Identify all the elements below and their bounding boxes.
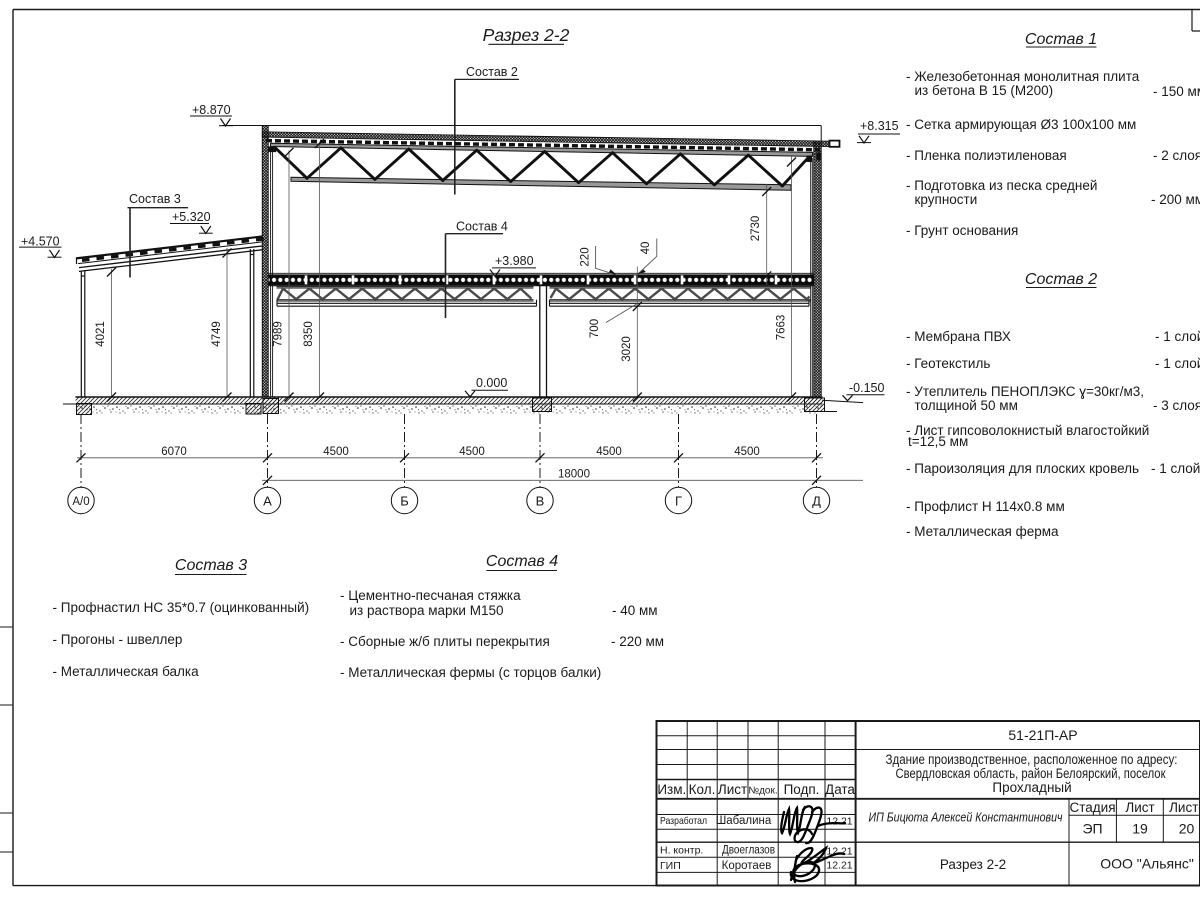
svg-text:А: А bbox=[263, 494, 272, 509]
svg-text:Коротаев: Коротаев bbox=[722, 860, 772, 872]
svg-text:Изм.: Изм. bbox=[657, 782, 686, 797]
svg-text:Состав 3: Состав 3 bbox=[175, 557, 247, 574]
svg-text:7989: 7989 bbox=[273, 321, 285, 347]
svg-text:Здание производственное, распо: Здание производственное, расположенное п… bbox=[886, 752, 1178, 767]
svg-text:- Пароизоляция для плоских кро: - Пароизоляция для плоских кровель bbox=[906, 461, 1139, 476]
svg-text:Разрез 2-2: Разрез 2-2 bbox=[940, 857, 1006, 872]
svg-text:Н. контр.: Н. контр. bbox=[660, 845, 703, 857]
svg-text:Двоеглазов: Двоеглазов bbox=[722, 845, 775, 857]
svg-text:- Металлическая фермы (с торцо: - Металлическая фермы (с торцов балки) bbox=[340, 665, 601, 680]
svg-text:Состав 1: Состав 1 bbox=[1025, 31, 1097, 48]
svg-text:- Утеплитель ПЕНОПЛЭКС ɣ=30кг/: - Утеплитель ПЕНОПЛЭКС ɣ=30кг/м3, bbox=[906, 384, 1144, 399]
svg-text:6070: 6070 bbox=[161, 446, 187, 458]
svg-text:4500: 4500 bbox=[459, 446, 485, 458]
svg-text:4749: 4749 bbox=[211, 321, 223, 347]
svg-text:- 1 слой: - 1 слой bbox=[1151, 461, 1200, 476]
svg-text:- Грунт основания: - Грунт основания bbox=[906, 223, 1018, 238]
svg-text:-0.150: -0.150 bbox=[849, 381, 884, 395]
svg-text:Лист: Лист bbox=[718, 782, 747, 797]
svg-text:- Железобетонная монолитная п: - Железобетонная монолитная плита bbox=[906, 69, 1140, 84]
svg-text:- Профлист Н 114х0.8 мм: - Профлист Н 114х0.8 мм bbox=[906, 499, 1065, 514]
svg-text:220: 220 bbox=[580, 247, 592, 266]
svg-text:4021: 4021 bbox=[95, 321, 107, 347]
svg-text:толщиной 50 мм: толщиной 50 мм bbox=[915, 398, 1018, 413]
svg-text:А/0: А/0 bbox=[72, 496, 89, 508]
svg-text:- 40 мм: - 40 мм bbox=[612, 603, 658, 618]
svg-text:18000: 18000 bbox=[558, 469, 590, 481]
svg-text:Г: Г bbox=[675, 494, 682, 509]
svg-text:- Подготовка из песка средней: - Подготовка из песка средней bbox=[906, 178, 1097, 193]
svg-text:t=12,5 мм: t=12,5 мм bbox=[908, 434, 968, 449]
svg-text:Кол.: Кол. bbox=[689, 782, 716, 797]
svg-text:2730: 2730 bbox=[750, 216, 762, 242]
svg-text:0.000: 0.000 bbox=[476, 376, 507, 390]
svg-text:19: 19 bbox=[1132, 821, 1148, 837]
svg-text:из раствора марки М150: из раствора марки М150 bbox=[350, 603, 504, 618]
svg-text:- 200 мм: - 200 мм bbox=[1151, 192, 1200, 207]
svg-text:- Прогоны - швеллер: - Прогоны - швеллер bbox=[53, 632, 183, 647]
svg-text:Дата: Дата bbox=[825, 782, 855, 797]
svg-text:Состав 2: Состав 2 bbox=[466, 65, 518, 79]
svg-text:- Цементно-песчаная стяжка: - Цементно-песчаная стяжка bbox=[340, 588, 521, 603]
svg-text:Д: Д bbox=[812, 494, 821, 509]
svg-text:Листов: Листов bbox=[1169, 800, 1200, 815]
svg-text:51-21П-АР: 51-21П-АР bbox=[1008, 727, 1077, 743]
svg-text:- Металлическая ферма: - Металлическая ферма bbox=[906, 524, 1059, 539]
svg-text:4500: 4500 bbox=[734, 446, 760, 458]
svg-text:7663: 7663 bbox=[776, 315, 788, 341]
svg-text:Состав 2: Состав 2 bbox=[1025, 271, 1097, 288]
svg-text:4500: 4500 bbox=[596, 446, 622, 458]
svg-text:+8.870: +8.870 bbox=[192, 103, 231, 117]
svg-text:- Профнастил НС 35*0.7 (оцинко: - Профнастил НС 35*0.7 (оцинкованный) bbox=[53, 600, 310, 615]
svg-text:- 150 мм: - 150 мм bbox=[1153, 84, 1200, 99]
svg-text:- 220 мм: - 220 мм bbox=[611, 634, 664, 649]
svg-text:+3.980: +3.980 bbox=[495, 254, 534, 268]
svg-text:В: В bbox=[536, 494, 545, 509]
svg-text:4500: 4500 bbox=[323, 446, 349, 458]
svg-text:- Сетка армирующая Ø3 100х100: - Сетка армирующая Ø3 100х100 мм bbox=[906, 117, 1136, 132]
svg-text:Стадия: Стадия bbox=[1069, 800, 1115, 815]
svg-text:ГИП: ГИП bbox=[660, 860, 681, 872]
svg-text:Лист: Лист bbox=[1125, 800, 1154, 815]
svg-text:- Сборные ж/б плиты перекрытия: - Сборные ж/б плиты перекрытия bbox=[340, 634, 550, 649]
svg-text:- Геотекстиль: - Геотекстиль bbox=[906, 356, 990, 371]
svg-text:- Металлическая балка: - Металлическая балка bbox=[53, 664, 200, 679]
svg-text:- Мембрана ПВХ: - Мембрана ПВХ bbox=[906, 329, 1011, 344]
svg-text:- Пленка полиэтиленовая: - Пленка полиэтиленовая bbox=[906, 148, 1067, 163]
svg-text:20: 20 bbox=[1179, 821, 1195, 837]
svg-text:- 3 слоя: - 3 слоя bbox=[1153, 398, 1200, 413]
svg-text:Прохладный: Прохладный bbox=[992, 780, 1071, 795]
svg-text:№док.: №док. bbox=[748, 786, 777, 797]
svg-text:40: 40 bbox=[640, 242, 652, 255]
svg-text:Шабалина: Шабалина bbox=[716, 815, 772, 827]
svg-text:3020: 3020 bbox=[621, 336, 633, 362]
svg-text:ЭП: ЭП bbox=[1082, 821, 1102, 837]
svg-text:- 1 слой: - 1 слой bbox=[1155, 356, 1200, 371]
svg-text:+5.320: +5.320 bbox=[172, 210, 211, 224]
svg-text:Свердловская область, район Бе: Свердловская область, район Белоярский, … bbox=[896, 766, 1166, 781]
svg-text:- 2 слоя: - 2 слоя bbox=[1153, 148, 1200, 163]
svg-text:Подп.: Подп. bbox=[784, 782, 820, 797]
svg-text:+4.570: +4.570 bbox=[21, 235, 60, 249]
svg-text:700: 700 bbox=[589, 319, 601, 338]
svg-text:Б: Б bbox=[400, 494, 409, 509]
svg-text:ИП Бицюта Алексей Константинов: ИП Бицюта Алексей Константинович bbox=[869, 811, 1063, 825]
svg-text:12.21: 12.21 bbox=[826, 860, 852, 872]
svg-text:+8.315: +8.315 bbox=[860, 119, 899, 133]
svg-text:из бетона В 15 (М200): из бетона В 15 (М200) bbox=[915, 83, 1054, 98]
svg-text:ООО "Альянс": ООО "Альянс" bbox=[1100, 856, 1194, 872]
svg-text:Разработал: Разработал bbox=[660, 815, 707, 827]
svg-text:крупности: крупности bbox=[915, 192, 978, 207]
svg-text:- 1 слой: - 1 слой bbox=[1155, 329, 1200, 344]
svg-text:Состав 3: Состав 3 bbox=[129, 192, 181, 206]
svg-text:Состав 4: Состав 4 bbox=[456, 220, 508, 234]
svg-text:Разрез 2-2: Разрез 2-2 bbox=[483, 25, 570, 45]
svg-text:12.21: 12.21 bbox=[826, 816, 852, 828]
svg-text:Состав 4: Состав 4 bbox=[486, 553, 558, 570]
svg-text:8350: 8350 bbox=[303, 321, 315, 347]
